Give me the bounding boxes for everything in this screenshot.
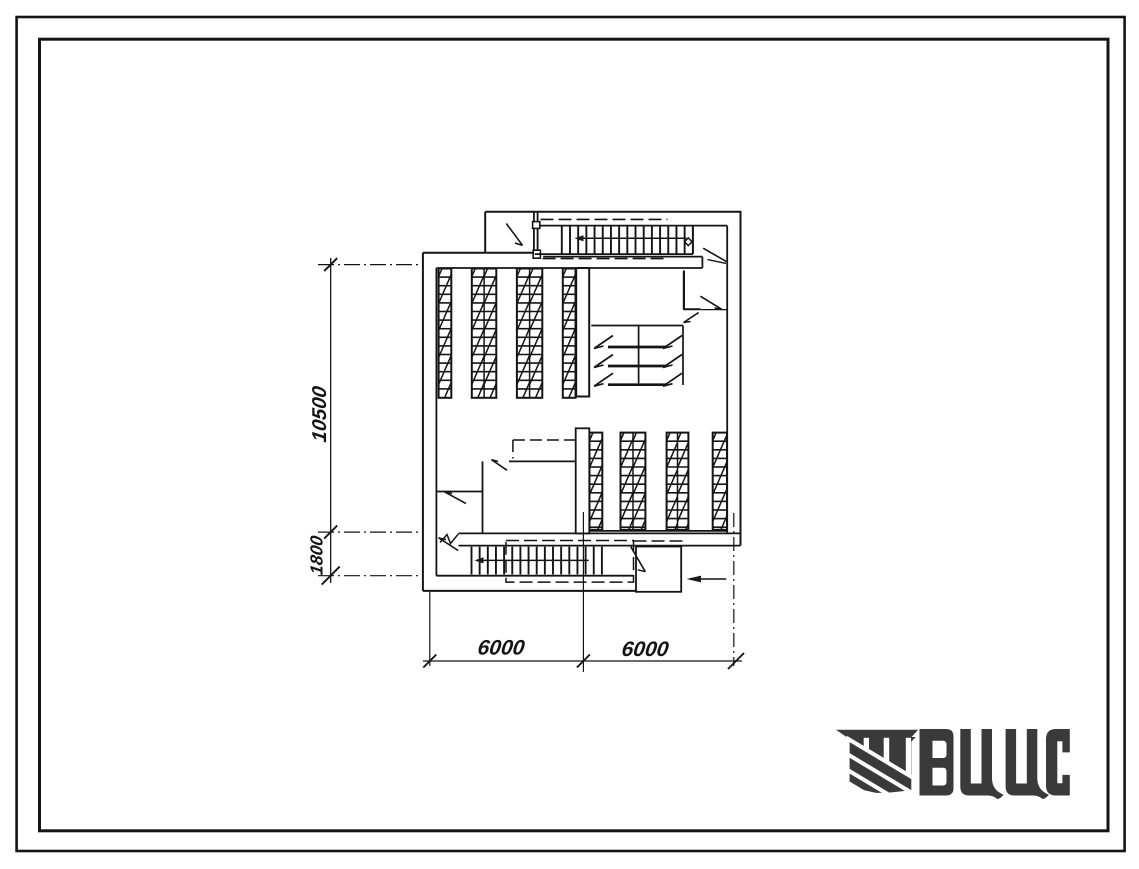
svg-text:1800: 1800 xyxy=(307,534,327,576)
svg-text:6000: 6000 xyxy=(476,637,526,660)
svg-text:6000: 6000 xyxy=(620,638,670,661)
svg-text:10500: 10500 xyxy=(309,385,331,444)
